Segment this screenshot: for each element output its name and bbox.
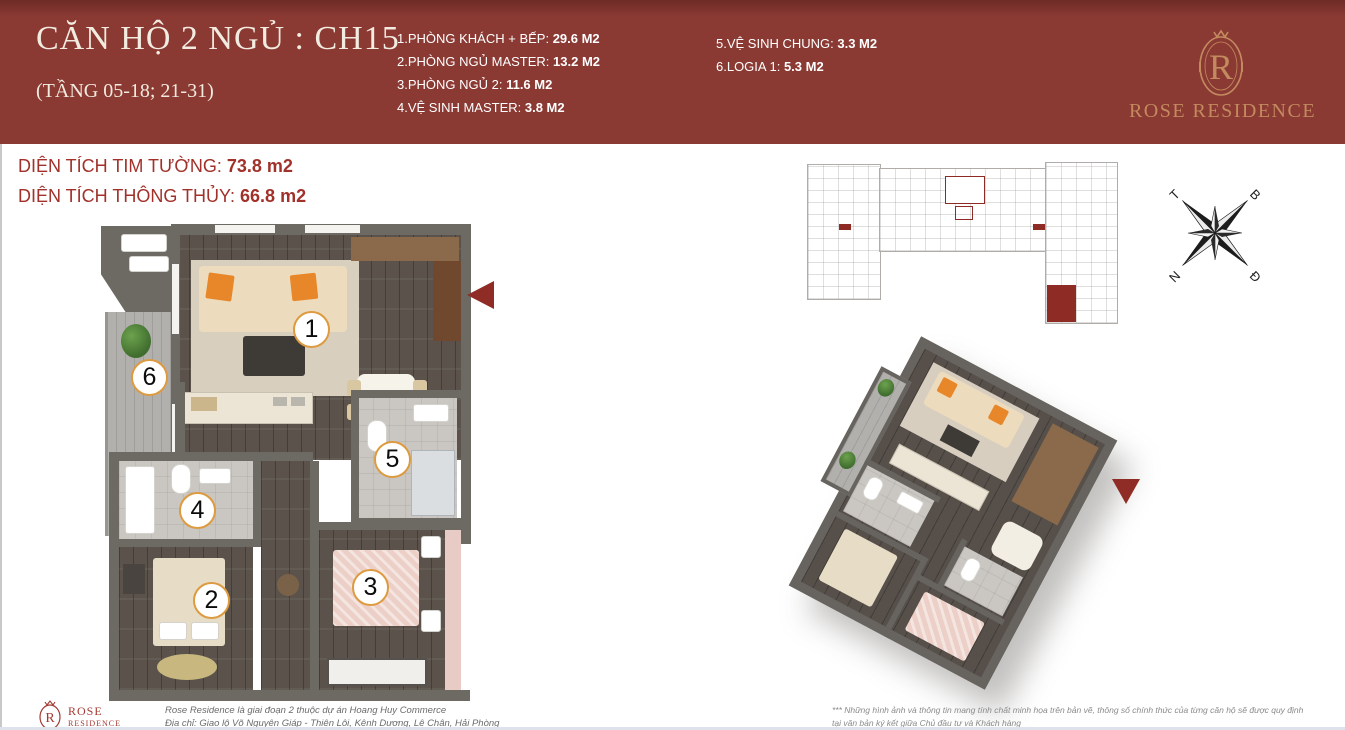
shower <box>411 450 455 516</box>
room-item: 5.VỆ SINH CHUNG: 3.3 M2 <box>716 32 877 55</box>
room-label: 3.PHÒNG NGỦ 2: <box>397 77 506 92</box>
ac-unit <box>129 256 169 272</box>
room-label: 6.LOGIA 1: <box>716 59 784 74</box>
key-plan-left-wing <box>807 164 881 300</box>
window <box>215 225 275 233</box>
room-item: 3.PHÒNG NGỦ 2: 11.6 M2 <box>397 73 600 96</box>
net-area-label: DIỆN TÍCH THÔNG THỦY: <box>18 186 240 206</box>
nightstand <box>421 536 441 558</box>
footer-disclaimer-line1: *** Những hình ảnh và thông tin mang tín… <box>832 705 1302 715</box>
room-marker-4: 4 <box>179 492 216 529</box>
pillow <box>205 272 234 301</box>
entry-arrow-left-icon <box>467 281 494 309</box>
key-plan-lift <box>955 206 973 220</box>
room-marker-3: 3 <box>352 569 389 606</box>
room-item: 6.LOGIA 1: 5.3 M2 <box>716 55 877 78</box>
wall <box>175 382 185 462</box>
room-list-col2: 5.VỆ SINH CHUNG: 3.3 M2 6.LOGIA 1: 5.3 M… <box>716 32 877 78</box>
key-plan-mark <box>1033 224 1045 230</box>
kitchen-sink <box>273 397 287 406</box>
window <box>305 225 360 233</box>
net-area-value: 66.8 m2 <box>240 186 306 206</box>
room-marker-6: 6 <box>131 359 168 396</box>
gross-area-value: 73.8 m2 <box>227 156 293 176</box>
compass-letter-north: B <box>1247 186 1264 203</box>
floor-plan-2d: 1 6 5 4 2 3 <box>95 224 471 701</box>
net-area-line: DIỆN TÍCH THÔNG THỦY: 66.8 m2 <box>18 186 306 207</box>
room-marker-5: 5 <box>374 441 411 478</box>
room-area: 29.6 M2 <box>553 31 600 46</box>
room-area: 3.3 M2 <box>837 36 877 51</box>
wardrobe <box>327 658 427 686</box>
wall <box>351 390 461 398</box>
wall <box>461 224 471 544</box>
room-marker-2: 2 <box>193 582 230 619</box>
kitchen-cabinet <box>433 261 461 341</box>
room-area: 11.6 M2 <box>506 77 552 92</box>
sink <box>413 404 449 422</box>
apartment-3d-view <box>789 336 1117 689</box>
entry-arrow-down-icon <box>1112 479 1140 504</box>
wall <box>109 452 313 461</box>
balcony-railing <box>105 312 108 536</box>
compass-icon: T B N Đ <box>1155 170 1275 300</box>
room-marker-1: 1 <box>293 311 330 348</box>
room-item: 2.PHÒNG NGỦ MASTER: 13.2 M2 <box>397 50 600 73</box>
key-plan-mark <box>839 224 851 230</box>
room-list-col1: 1.PHÒNG KHÁCH + BẾP: 29.6 M2 2.PHÒNG NGỦ… <box>397 27 600 119</box>
compass-letter-west: T <box>1167 186 1183 202</box>
bed-pillow <box>191 622 219 640</box>
footer-logo-icon: R <box>36 700 64 730</box>
logo-monogram-letter: R <box>1209 47 1233 87</box>
key-plan-core <box>945 176 985 204</box>
kitchen-sink <box>291 397 305 406</box>
plant <box>121 324 151 358</box>
pouf <box>277 574 299 596</box>
room-area: 5.3 M2 <box>784 59 824 74</box>
page: CĂN HỘ 2 NGỦ : CH15 (TẦNG 05-18; 21-31) … <box>0 0 1345 730</box>
footer-project-line: Rose Residence là giai đoạn 2 thuộc dự á… <box>165 705 525 716</box>
footer-logo-letter: R <box>45 711 55 726</box>
unit-highlight-ch15 <box>1047 285 1076 322</box>
room-label: 4.VỆ SINH MASTER: <box>397 100 525 115</box>
page-left-border <box>0 144 2 730</box>
building-key-plan <box>803 160 1118 326</box>
wall <box>253 461 261 547</box>
bed-pillow <box>159 622 187 640</box>
rose-residence-logo-icon: R <box>1196 28 1246 98</box>
brand-name: ROSE RESIDENCE <box>1115 100 1330 123</box>
wall <box>310 461 319 690</box>
bedroom-rug <box>157 654 217 680</box>
compass-letter-south: N <box>1166 268 1183 285</box>
gross-area-label: DIỆN TÍCH TIM TƯỜNG: <box>18 156 227 176</box>
nightstand <box>421 610 441 632</box>
wall <box>119 539 259 547</box>
header-banner: CĂN HỘ 2 NGỦ : CH15 (TẦNG 05-18; 21-31) … <box>0 0 1345 144</box>
room-area: 13.2 M2 <box>553 54 600 69</box>
room-label: 5.VỆ SINH CHUNG: <box>716 36 837 51</box>
tv-cabinet <box>351 237 459 261</box>
gross-area-line: DIỆN TÍCH TIM TƯỜNG: 73.8 m2 <box>18 156 293 177</box>
accent-wall <box>445 530 461 690</box>
toilet <box>171 464 191 494</box>
room-label: 2.PHÒNG NGỦ MASTER: <box>397 54 553 69</box>
sink <box>199 468 231 484</box>
coffee-table <box>243 336 305 376</box>
floor-range: (TẦNG 05-18; 21-31) <box>36 80 214 103</box>
pillow <box>290 273 319 302</box>
compass-letter-east: Đ <box>1247 268 1264 285</box>
footer-brand-line1: ROSE <box>68 704 103 719</box>
ac-unit <box>121 234 167 252</box>
bathtub <box>125 466 155 534</box>
wall <box>109 452 119 692</box>
balcony-door <box>172 264 179 334</box>
kitchen-stove <box>191 397 217 411</box>
wall <box>310 522 470 530</box>
iso-bed2 <box>904 591 985 662</box>
room-label: 1.PHÒNG KHÁCH + BẾP: <box>397 31 553 46</box>
room-area: 3.8 M2 <box>525 100 565 115</box>
room-item: 1.PHÒNG KHÁCH + BẾP: 29.6 M2 <box>397 27 600 50</box>
room-item: 4.VỆ SINH MASTER: 3.8 M2 <box>397 96 600 119</box>
wall <box>109 690 470 701</box>
page-title: CĂN HỘ 2 NGỦ : CH15 <box>36 20 400 58</box>
dresser <box>123 564 145 594</box>
